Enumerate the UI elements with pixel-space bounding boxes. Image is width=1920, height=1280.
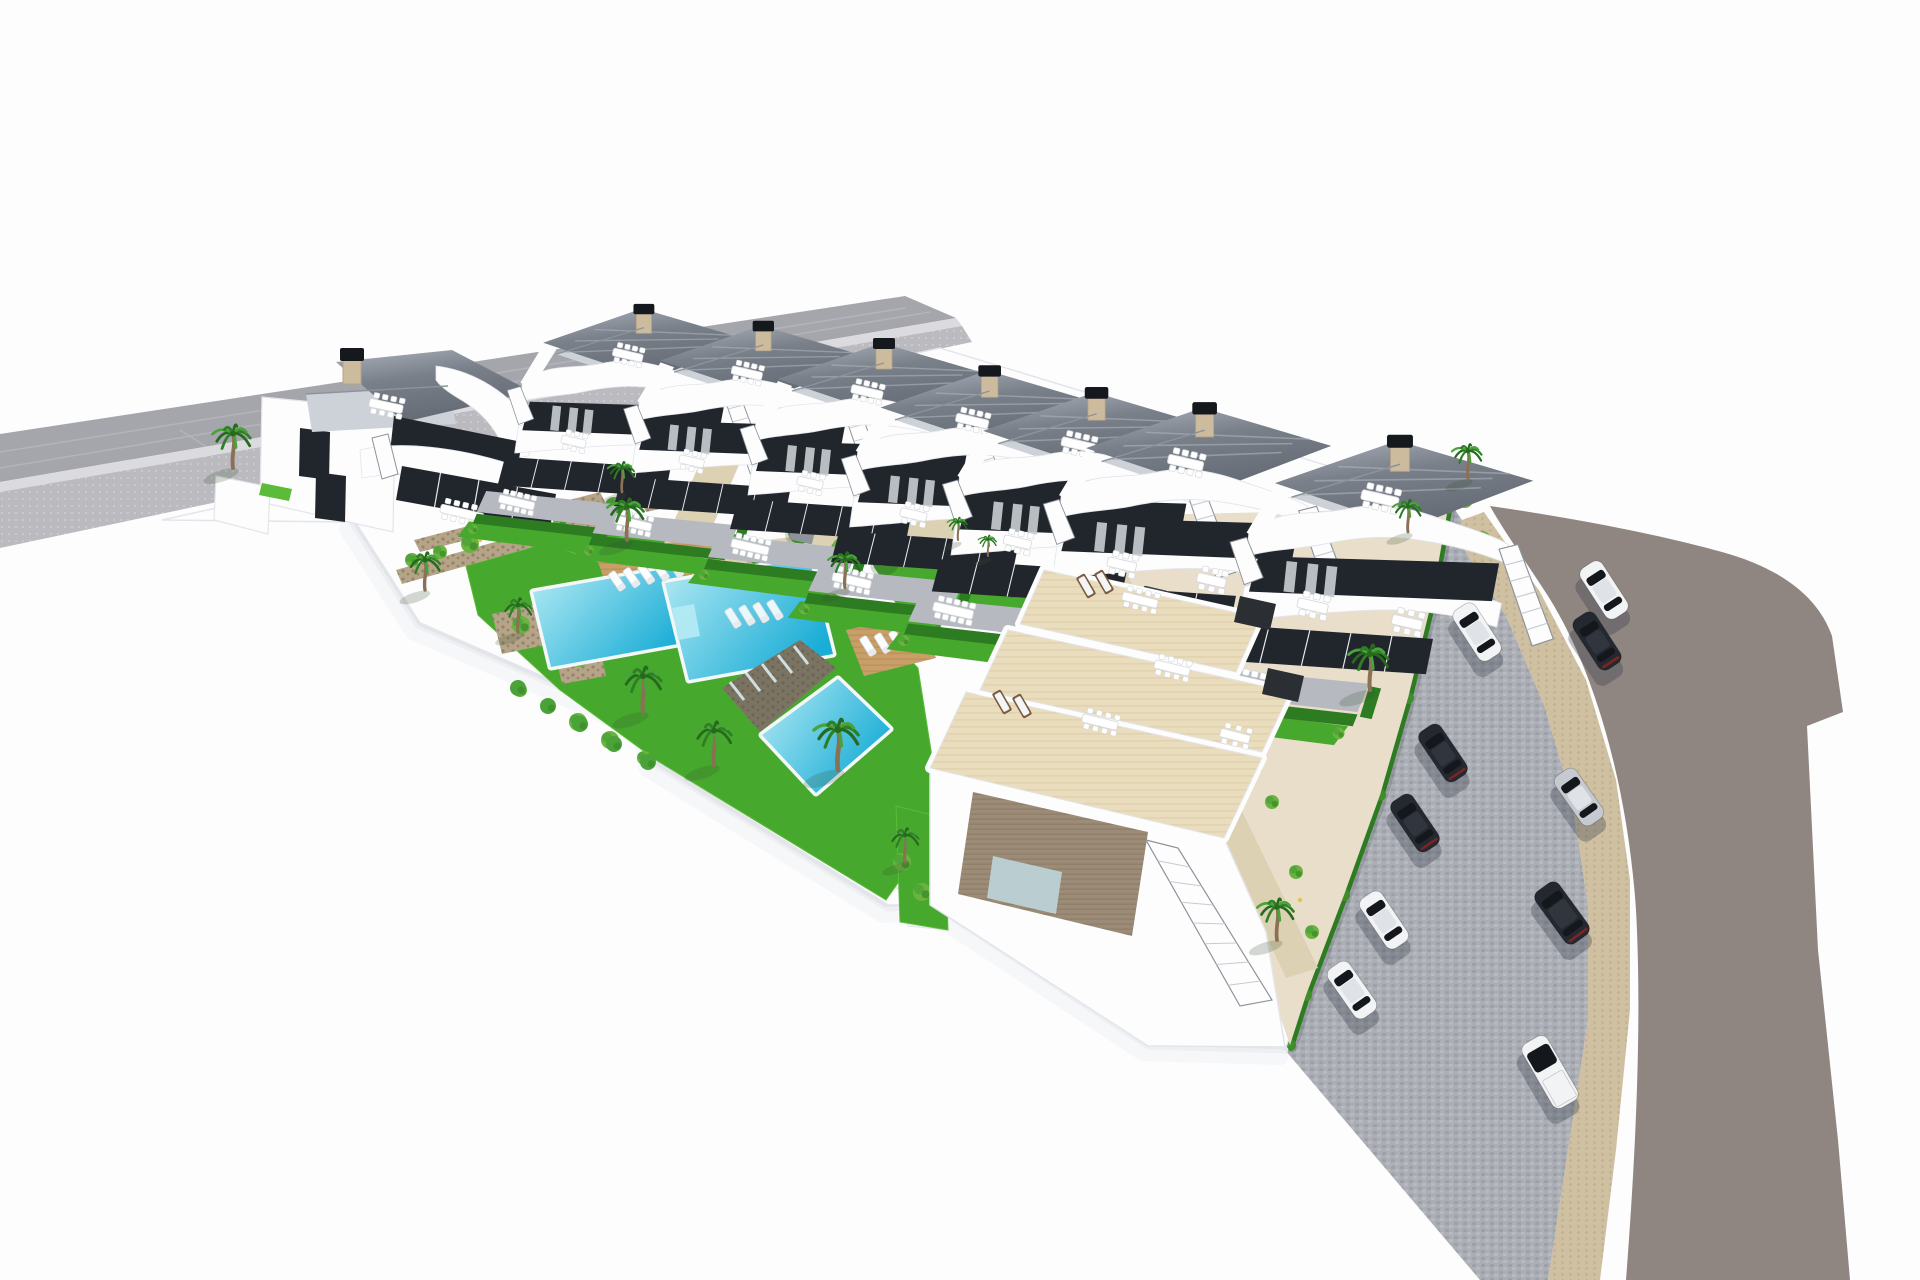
dining-table <box>1118 570 1125 577</box>
dining-table <box>754 553 761 559</box>
dining-table <box>875 399 882 405</box>
dining-table <box>582 433 588 439</box>
dining-table <box>923 505 930 512</box>
dining-table <box>1371 503 1379 510</box>
dining-table <box>856 378 863 384</box>
dining-table <box>1381 505 1389 512</box>
dining-table <box>1127 586 1134 592</box>
dining-table <box>1232 741 1239 747</box>
dining-table <box>636 362 642 368</box>
dining-table <box>1182 676 1189 682</box>
dining-table <box>459 518 466 524</box>
dining-table <box>1303 591 1311 598</box>
dining-table <box>624 344 630 350</box>
dining-table <box>1323 595 1331 602</box>
shrub <box>704 574 709 579</box>
chimney <box>1192 402 1217 437</box>
dining-table <box>1394 489 1402 496</box>
dining-table <box>1145 590 1152 596</box>
dining-table <box>950 616 957 623</box>
dining-table <box>1173 447 1180 454</box>
chimney <box>340 348 364 384</box>
dining-table <box>520 508 526 514</box>
dining-table <box>1122 552 1129 559</box>
dining-table <box>700 453 706 459</box>
dining-table <box>1242 668 1250 675</box>
shrub <box>699 570 709 580</box>
dining-table <box>860 396 867 402</box>
dining-table <box>1186 469 1193 476</box>
shrub <box>1265 795 1279 809</box>
dining-table <box>445 498 452 504</box>
dining-table <box>1123 601 1130 607</box>
dining-table <box>1235 725 1242 731</box>
dining-table <box>755 380 761 386</box>
dining-table <box>1376 484 1384 491</box>
dining-table <box>910 519 917 526</box>
dining-table <box>765 539 772 545</box>
chimney <box>873 338 895 349</box>
palm-tree <box>1466 449 1471 454</box>
dining-table <box>441 514 448 520</box>
dining-table <box>399 398 406 404</box>
dining-table <box>751 363 757 369</box>
shrub <box>1305 925 1319 939</box>
dining-table <box>743 534 750 540</box>
dining-table <box>1083 434 1090 441</box>
dining-table <box>1190 451 1197 458</box>
dining-table <box>1108 567 1115 574</box>
shrub <box>1290 1044 1295 1049</box>
dining-table <box>374 392 381 398</box>
shrub <box>913 883 931 901</box>
palm-tree <box>711 728 717 734</box>
dining-table <box>1366 482 1374 489</box>
chimney <box>1085 387 1109 420</box>
dining-table <box>621 359 627 365</box>
dining-table <box>1087 708 1094 714</box>
dining-table <box>1246 728 1253 734</box>
dining-table <box>1101 728 1108 734</box>
chimney <box>1088 397 1105 421</box>
shrub <box>1408 697 1413 702</box>
shrub <box>640 754 656 770</box>
dining-table <box>531 495 537 501</box>
dining-table <box>1110 730 1117 736</box>
dining-table <box>1075 432 1082 439</box>
chimney <box>978 365 1001 397</box>
dining-table <box>1018 530 1025 537</box>
shrub <box>1289 865 1303 879</box>
shrub <box>1333 727 1345 739</box>
shrub <box>1312 931 1318 937</box>
dining-table <box>617 342 623 348</box>
shrub <box>1306 994 1311 999</box>
dining-table <box>382 394 389 400</box>
palm-tree <box>230 431 236 437</box>
dining-table <box>1319 614 1327 621</box>
palm-tree <box>903 833 908 838</box>
shrub <box>512 616 530 634</box>
dining-table <box>1159 654 1166 660</box>
shrub <box>473 528 477 532</box>
dining-table <box>816 490 823 496</box>
shrub <box>588 550 592 554</box>
dining-table <box>1177 658 1184 664</box>
dining-table <box>905 501 912 508</box>
chimney <box>340 348 364 361</box>
shrub <box>468 524 478 534</box>
dining-table <box>934 612 941 619</box>
dining-table <box>810 472 817 478</box>
palm-tree <box>843 557 848 562</box>
shrub <box>1344 894 1349 899</box>
dining-table <box>860 571 867 578</box>
dining-table <box>462 502 469 508</box>
detached-villa <box>299 428 330 480</box>
dining-table <box>507 505 513 511</box>
dining-table <box>736 360 742 366</box>
dining-table <box>1362 501 1370 508</box>
dining-table <box>1208 585 1215 592</box>
chimney <box>1196 412 1214 437</box>
chimney <box>873 338 895 369</box>
dining-table <box>454 500 461 506</box>
dining-table <box>1004 545 1011 552</box>
dining-table <box>867 573 874 580</box>
dining-table <box>740 377 746 383</box>
dining-table <box>732 548 739 554</box>
dining-table <box>1092 725 1099 731</box>
palm-tree <box>624 504 630 510</box>
shrub <box>580 722 587 729</box>
dining-table <box>750 536 757 542</box>
dining-table <box>1182 449 1189 456</box>
chimney <box>1387 435 1413 472</box>
palm-tree <box>640 673 646 679</box>
chimney <box>1192 402 1217 414</box>
shrub <box>606 736 622 752</box>
dining-table <box>1195 471 1202 478</box>
dining-table <box>1198 583 1205 590</box>
chimney <box>753 321 774 332</box>
dining-table <box>1132 555 1139 562</box>
dining-table <box>683 449 689 455</box>
chimney <box>978 365 1001 376</box>
dining-table <box>852 394 859 400</box>
dining-table <box>396 413 403 419</box>
shrub <box>648 760 655 767</box>
dining-table <box>1173 674 1180 680</box>
dining-table <box>833 582 840 589</box>
dining-table <box>798 486 805 492</box>
dining-table <box>637 530 643 536</box>
dining-table <box>1199 453 1206 460</box>
dining-table <box>957 423 964 430</box>
palm-tree <box>1406 504 1410 508</box>
dining-table <box>628 360 634 366</box>
dining-table <box>802 470 809 476</box>
chimney <box>633 304 654 333</box>
dining-table <box>1112 550 1119 557</box>
dining-table <box>1071 449 1078 456</box>
dining-table <box>566 429 572 435</box>
dining-table <box>579 448 585 454</box>
dining-table <box>370 408 377 414</box>
dining-table <box>747 552 754 558</box>
dining-table <box>513 507 519 513</box>
shrub <box>804 608 809 613</box>
dining-table <box>570 446 576 452</box>
dining-table <box>1136 588 1143 594</box>
aerial-render-canvas <box>0 0 1920 1280</box>
dining-table <box>1385 487 1393 494</box>
shrub <box>899 635 910 646</box>
dining-table <box>614 357 620 363</box>
dining-table <box>1407 609 1415 616</box>
chimney <box>1387 435 1413 448</box>
chimney <box>756 329 772 350</box>
dining-table <box>639 347 645 353</box>
dining-table <box>510 490 516 496</box>
chimney <box>876 347 892 369</box>
shrub <box>1272 801 1278 807</box>
dining-table <box>1186 660 1193 666</box>
shrub <box>922 890 930 898</box>
dining-table <box>1066 430 1073 437</box>
dining-table <box>648 516 654 522</box>
dining-table <box>871 382 878 388</box>
dining-table <box>942 614 949 621</box>
dining-table <box>1309 611 1317 618</box>
dining-table <box>1150 608 1157 614</box>
dining-table <box>387 412 394 418</box>
shrub <box>540 698 556 714</box>
dining-table <box>736 533 743 539</box>
dining-table <box>747 378 753 384</box>
dining-table <box>471 504 478 510</box>
dining-table <box>574 431 580 437</box>
dining-table <box>517 492 523 498</box>
dining-table <box>697 468 703 474</box>
dining-table <box>852 569 859 576</box>
shrub <box>1338 732 1343 737</box>
chimney <box>981 375 997 398</box>
dining-table <box>1023 549 1030 556</box>
dining-table <box>1155 669 1162 675</box>
chimney <box>1085 387 1109 399</box>
dining-table <box>1008 528 1015 535</box>
dining-table <box>961 601 968 608</box>
dining-table <box>692 451 698 457</box>
dining-table <box>863 589 870 596</box>
dining-table <box>901 517 908 524</box>
dining-table <box>807 488 814 494</box>
dining-table <box>879 384 886 390</box>
dining-table <box>1164 671 1171 677</box>
dining-table <box>1169 465 1176 472</box>
dining-table <box>919 522 926 529</box>
dining-table <box>1096 710 1103 716</box>
palm-tree <box>987 538 990 541</box>
dining-table <box>965 619 972 626</box>
dining-table <box>960 407 967 414</box>
dining-table <box>1062 447 1069 454</box>
dining-table <box>1154 592 1161 598</box>
dining-table <box>758 538 765 544</box>
dining-table <box>524 494 530 500</box>
dining-table <box>1393 625 1401 632</box>
dining-table <box>500 504 506 510</box>
shrub <box>614 742 621 749</box>
shrub <box>518 686 525 693</box>
palm-tree <box>834 726 841 733</box>
gardens <box>1298 898 1302 902</box>
dining-table <box>973 427 980 434</box>
dining-table <box>1132 603 1139 609</box>
dining-table <box>965 425 972 432</box>
palm-tree <box>1367 651 1373 657</box>
dining-table <box>1403 628 1411 635</box>
dining-table <box>1141 606 1148 612</box>
dining-table <box>1114 714 1121 720</box>
shrub <box>470 542 478 550</box>
dining-table <box>680 464 686 470</box>
palm-tree <box>620 466 624 470</box>
dining-table <box>1128 572 1135 579</box>
dining-table <box>856 587 863 594</box>
dining-table <box>739 550 746 556</box>
shrub <box>548 704 555 711</box>
dining-table <box>1212 568 1219 575</box>
dining-table <box>1014 547 1021 554</box>
shrub <box>799 604 809 614</box>
palm-tree <box>956 520 959 523</box>
dining-table <box>1091 436 1098 443</box>
dining-table <box>938 595 945 602</box>
chimney <box>1391 445 1410 471</box>
shrub <box>510 680 526 696</box>
dining-table <box>1222 570 1229 577</box>
dining-table <box>969 603 976 610</box>
chimney <box>343 358 361 384</box>
dining-table <box>868 398 875 404</box>
dining-table <box>946 597 953 604</box>
shrub <box>1380 794 1385 799</box>
chimney <box>633 304 654 314</box>
dining-table <box>1418 612 1426 619</box>
dining-table <box>1298 609 1306 616</box>
palm-tree <box>516 603 521 608</box>
dining-table <box>1168 656 1175 662</box>
shrub <box>572 716 588 732</box>
dining-table <box>1178 467 1185 474</box>
dining-table <box>759 365 765 371</box>
dining-table <box>616 525 622 531</box>
shrub <box>440 551 446 557</box>
shrub <box>1296 871 1302 877</box>
dining-table <box>527 510 533 516</box>
chimney <box>753 321 774 351</box>
dining-table <box>732 375 738 381</box>
dining-table <box>1218 588 1225 595</box>
dining-table <box>688 466 694 472</box>
dining-table <box>503 489 509 495</box>
dining-table <box>630 528 636 534</box>
dining-table <box>1221 738 1228 744</box>
palm-tree <box>422 557 427 562</box>
dining-table <box>914 503 921 510</box>
dining-table <box>954 599 961 606</box>
palm-tree <box>1274 904 1280 910</box>
dining-table <box>968 409 975 416</box>
dining-table <box>761 555 768 561</box>
dining-table <box>1313 593 1321 600</box>
dining-table <box>1202 566 1209 573</box>
dining-table <box>450 516 457 522</box>
shrub <box>521 623 529 631</box>
dining-table <box>1225 722 1232 728</box>
dining-table <box>985 412 992 419</box>
dining-table <box>390 396 397 402</box>
dining-table <box>1251 670 1259 677</box>
dining-table <box>1105 712 1112 718</box>
dining-table <box>562 444 568 450</box>
dining-table <box>743 362 749 368</box>
shrub <box>904 640 909 645</box>
shrub <box>584 546 594 556</box>
dining-table <box>1242 743 1249 749</box>
chimney <box>636 312 651 333</box>
dining-table <box>957 617 964 624</box>
dining-table <box>1027 533 1034 540</box>
detached-villa <box>315 472 346 522</box>
dining-table <box>819 474 826 480</box>
dining-table <box>379 410 386 416</box>
dining-table <box>1414 630 1422 637</box>
dining-table <box>1397 607 1405 614</box>
villa-development-aerial-render <box>0 0 1920 1280</box>
dining-table <box>863 380 870 386</box>
dining-table <box>977 411 984 418</box>
dining-table <box>644 531 650 537</box>
dining-table <box>1083 723 1090 729</box>
dining-table <box>632 346 638 352</box>
